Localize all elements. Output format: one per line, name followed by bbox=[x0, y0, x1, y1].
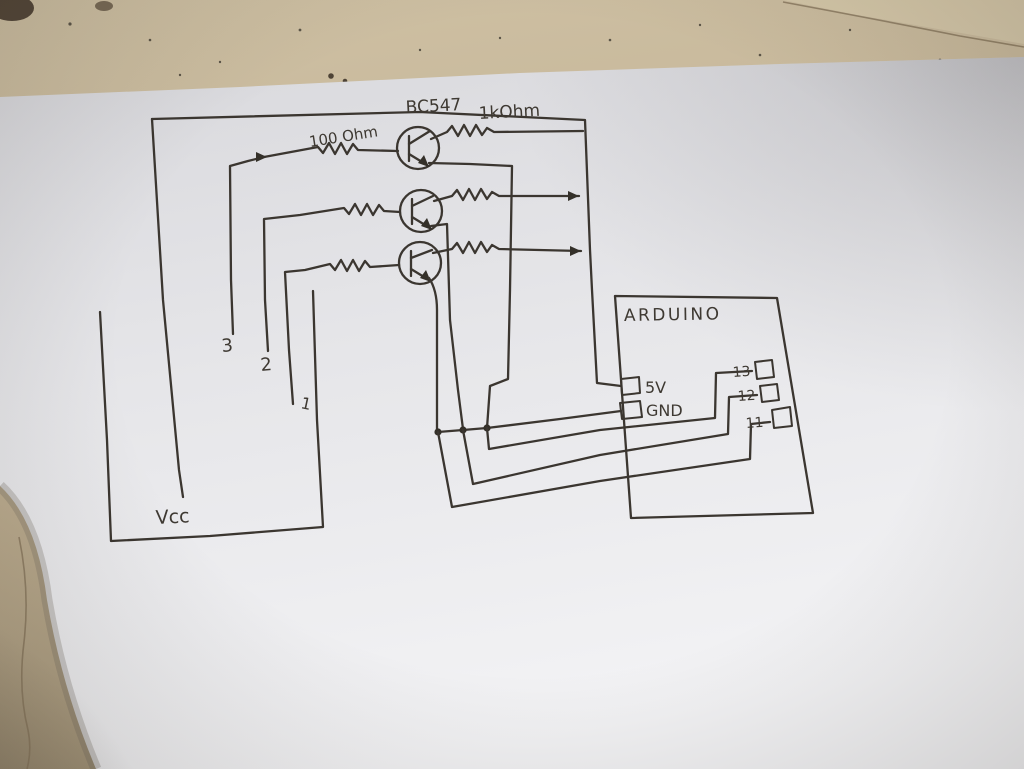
label-pin-12: 12 bbox=[737, 388, 756, 405]
label-pin-5v: 5V bbox=[645, 378, 666, 397]
label-pin-11: 11 bbox=[745, 415, 764, 432]
wall-stain-small bbox=[95, 1, 113, 11]
label-pin-gnd: GND bbox=[646, 401, 683, 420]
label-output-3: 3 bbox=[221, 335, 234, 357]
label-output-2: 2 bbox=[260, 354, 273, 376]
wall-dot bbox=[328, 73, 334, 79]
label-transistor-part: BC547 bbox=[405, 95, 462, 118]
label-pin-13: 13 bbox=[732, 364, 751, 381]
sketch-canvas: BC547 1kOhm 100 Ohm Vcc ARDUINO 5V GND 1… bbox=[0, 0, 1024, 769]
photo-of-circuit-sketch: BC547 1kOhm 100 Ohm Vcc ARDUINO 5V GND 1… bbox=[0, 0, 1024, 769]
label-collector-resistor: 1kOhm bbox=[478, 101, 540, 124]
label-vcc: Vcc bbox=[155, 505, 190, 529]
label-arduino: ARDUINO bbox=[624, 304, 722, 326]
